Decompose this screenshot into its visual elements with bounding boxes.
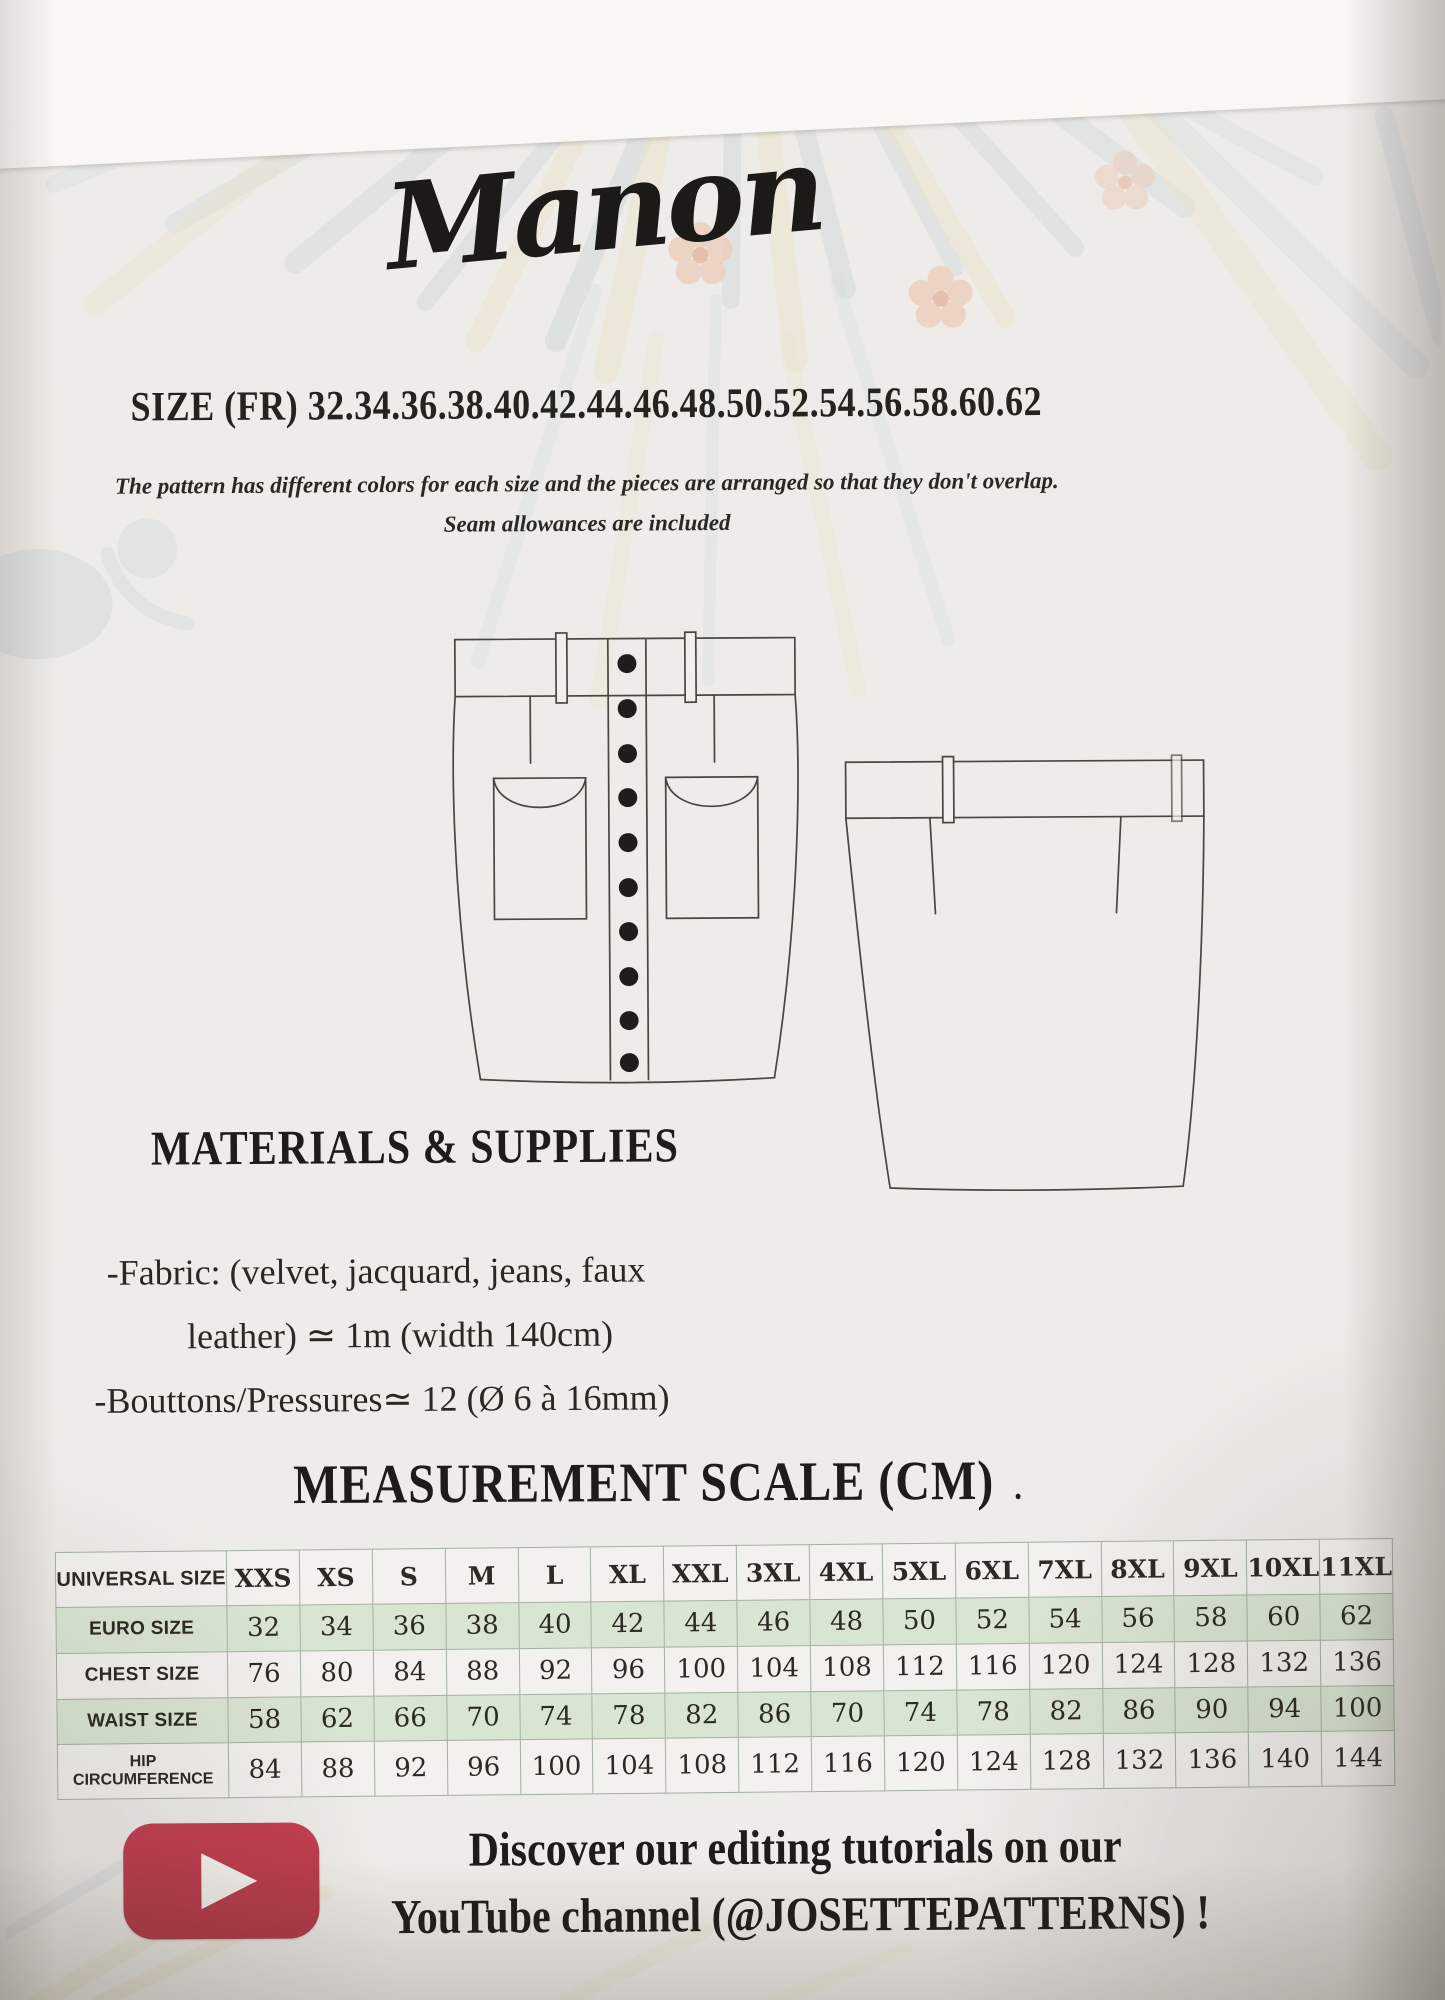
- skirt-back-technical-drawing: [834, 752, 1222, 1199]
- size-cell: 78: [592, 1693, 665, 1740]
- size-cell: 7XL: [1028, 1542, 1101, 1598]
- size-cell: 34: [300, 1604, 373, 1651]
- size-cell: 112: [883, 1644, 956, 1691]
- size-cell: 116: [811, 1736, 884, 1791]
- size-cell: 96: [447, 1740, 520, 1795]
- size-cell: 10XL: [1247, 1539, 1320, 1595]
- row-label: CHEST SIZE: [56, 1651, 227, 1699]
- size-cell: 3XL: [736, 1545, 809, 1601]
- size-cell: XXL: [664, 1545, 737, 1601]
- size-cell: 9XL: [1174, 1540, 1247, 1596]
- size-cell: M: [445, 1548, 518, 1604]
- size-cell: 132: [1248, 1640, 1321, 1687]
- size-cell: S: [372, 1548, 445, 1604]
- size-cell: 104: [737, 1645, 810, 1692]
- row-label: EURO SIZE: [56, 1606, 227, 1654]
- size-cell: 100: [520, 1739, 593, 1794]
- size-cell: 92: [519, 1648, 592, 1695]
- size-cell: 11XL: [1319, 1539, 1392, 1595]
- size-cell: L: [518, 1547, 591, 1603]
- size-cell: 76: [227, 1651, 300, 1698]
- size-cell: 40: [518, 1602, 591, 1649]
- size-cell: 60: [1247, 1594, 1320, 1641]
- size-cell: 54: [1028, 1597, 1101, 1644]
- size-cell: 78: [957, 1689, 1030, 1736]
- size-cell: 46: [737, 1600, 810, 1647]
- pattern-sheet-photo: Manon SIZE (FR) 32.34.36.38.40.42.44.46.…: [0, 0, 1445, 2000]
- footer-line1: Discover our editing tutorials on our: [335, 1822, 1255, 1876]
- size-cell: 116: [956, 1643, 1029, 1690]
- size-cell: 132: [1103, 1733, 1176, 1788]
- size-cell: 6XL: [955, 1542, 1028, 1598]
- size-cell: 136: [1176, 1732, 1249, 1787]
- size-cell: 96: [592, 1647, 665, 1694]
- fabric-line1: -Fabric: (velvet, jacquard, jeans, faux: [107, 1248, 646, 1293]
- size-cell: 32: [227, 1605, 300, 1652]
- size-cell: 8XL: [1101, 1541, 1174, 1597]
- size-table: UNIVERSAL SIZEXXSXSSMLXLXXL3XL4XL5XL6XL7…: [55, 1538, 1396, 1800]
- size-cell: XL: [591, 1546, 664, 1602]
- size-cell: 84: [373, 1649, 446, 1696]
- size-cell: 108: [810, 1645, 883, 1692]
- row-label: UNIVERSAL SIZE: [55, 1551, 227, 1608]
- size-cell: 86: [738, 1691, 811, 1738]
- size-cell: 108: [666, 1738, 739, 1793]
- size-cell: 86: [1102, 1687, 1175, 1734]
- size-cell: 82: [665, 1692, 738, 1739]
- paper-sheet: Manon SIZE (FR) 32.34.36.38.40.42.44.46.…: [0, 0, 1445, 2000]
- size-cell: 58: [1174, 1595, 1247, 1642]
- skirt-front-technical-drawing: [438, 629, 821, 1091]
- button-dots: [617, 654, 639, 1072]
- size-cell: XS: [299, 1549, 372, 1605]
- size-cell: 124: [957, 1735, 1030, 1790]
- pattern-title: Manon: [381, 132, 790, 287]
- size-cell: 38: [446, 1603, 519, 1650]
- play-triangle: [201, 1853, 257, 1909]
- size-cell: 140: [1249, 1732, 1322, 1787]
- stray-dot: .: [994, 1468, 1023, 1506]
- measurement-heading: MEASUREMENT SCALE (CM).: [258, 1453, 1058, 1513]
- size-cell: 66: [374, 1695, 447, 1742]
- buttons-line: -Bouttons/Pressures≃ 12 (Ø 6 à 16mm): [94, 1376, 669, 1422]
- size-cell: 62: [1320, 1594, 1393, 1641]
- size-cell: 42: [591, 1601, 664, 1648]
- size-range-line: SIZE (FR) 32.34.36.38.40.42.44.46.48.50.…: [91, 380, 1081, 428]
- size-cell: 44: [664, 1600, 737, 1647]
- size-cell: 104: [593, 1738, 666, 1793]
- size-cell: 120: [1029, 1642, 1102, 1689]
- size-cell: 70: [446, 1694, 519, 1741]
- fabric-line2: leather) ≃ 1m (width 140cm): [187, 1313, 613, 1358]
- size-cell: 48: [810, 1599, 883, 1646]
- size-cell: 92: [374, 1741, 447, 1796]
- size-cell: 70: [811, 1690, 884, 1737]
- pattern-note-line2: Seam allowances are included: [92, 508, 1082, 540]
- size-cell: 52: [956, 1597, 1029, 1644]
- size-cell: 56: [1101, 1596, 1174, 1643]
- size-cell: 74: [884, 1690, 957, 1737]
- size-cell: 5XL: [882, 1543, 955, 1599]
- size-cell: 124: [1102, 1642, 1175, 1689]
- size-cell: 58: [228, 1697, 301, 1744]
- size-cell: 120: [884, 1735, 957, 1790]
- materials-heading: MATERIALS & SUPPLIES: [151, 1122, 679, 1173]
- size-cell: 88: [301, 1742, 374, 1797]
- size-cell: 82: [1029, 1688, 1102, 1735]
- row-label: WAIST SIZE: [57, 1697, 228, 1745]
- size-cell: 128: [1175, 1641, 1248, 1688]
- size-cell: 88: [446, 1648, 519, 1695]
- size-cell: 144: [1321, 1731, 1394, 1786]
- size-cell: 80: [300, 1650, 373, 1697]
- size-cell: 112: [738, 1737, 811, 1792]
- size-cell: 90: [1175, 1687, 1248, 1734]
- size-cell: 94: [1248, 1686, 1321, 1733]
- youtube-play-icon: [123, 1822, 320, 1939]
- size-cell: 128: [1030, 1734, 1103, 1789]
- size-cell: 136: [1320, 1639, 1393, 1686]
- size-cell: 36: [373, 1603, 446, 1650]
- size-cell: 84: [228, 1742, 301, 1797]
- size-cell: XXS: [226, 1550, 299, 1606]
- size-cell: 100: [665, 1646, 738, 1693]
- footer-line2: YouTube channel (@JOSETTEPATTERNS) !: [305, 1889, 1295, 1943]
- size-cell: 4XL: [809, 1544, 882, 1600]
- pattern-note-line1: The pattern has different colors for eac…: [92, 468, 1082, 500]
- size-cell: 74: [519, 1693, 592, 1740]
- size-cell: 50: [883, 1598, 956, 1645]
- size-cell: 100: [1321, 1685, 1394, 1732]
- row-label: HIP CIRCUMFERENCE: [57, 1743, 229, 1799]
- size-cell: 62: [301, 1696, 374, 1743]
